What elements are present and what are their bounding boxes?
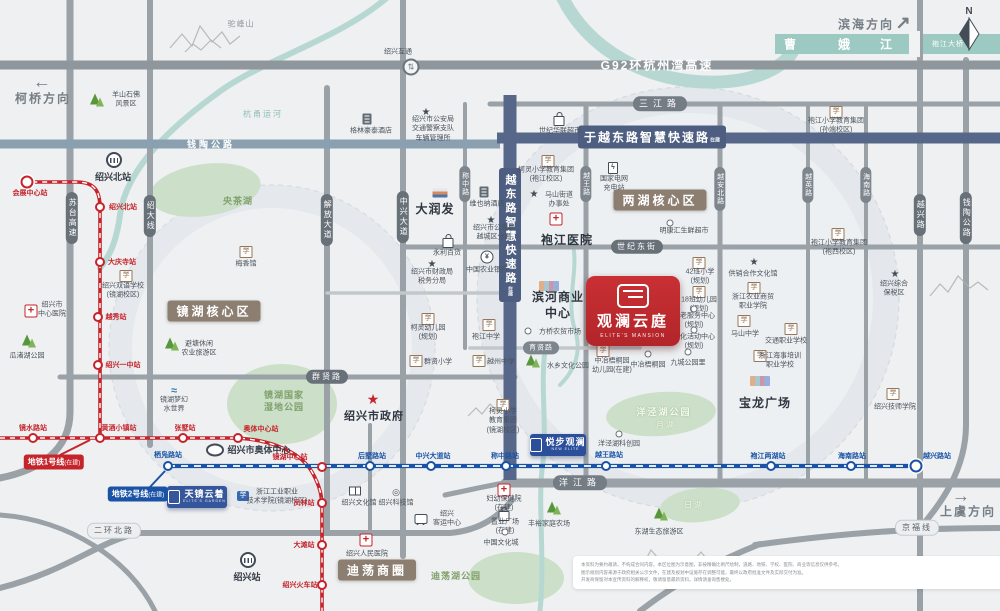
keling-primary-1-label: 柯灵小学教育集团(袍江校区) [518, 166, 574, 185]
shuangyu-school-icon [120, 270, 133, 282]
l2-station-中兴大道站 [426, 461, 436, 471]
nongshang-college-label: 浙江农业商贸职业学院 [732, 293, 774, 312]
l1-station-绍兴火车站 [317, 580, 327, 590]
zone-lianghu: 两湖核心区 [613, 190, 706, 211]
l1-station-label-镜湖中心站: 镜湖中心站 [273, 452, 308, 462]
paojiang-primary-1-label: 袍江小学教育集团(孙端校区) [808, 117, 864, 136]
l1-station-label-奥体中心站: 奥体中心站 [244, 424, 279, 434]
bitang-agritourism-label: 避塘休闲农业旅游区 [182, 340, 217, 359]
paojiang-hospital-label: 袍江医院 [541, 232, 593, 248]
rt-mart-label: 大润发 [415, 201, 454, 217]
disclaimer-box: 本资料为要约邀请，不构成合同内容。本区位图为示意图，非按精确比例尺绘制，道路、地… [573, 556, 1000, 589]
l2-station-越王路站 [601, 461, 611, 471]
project-guanlan-yunting-logo: 观澜云庭 ELITE'S MANSION [586, 276, 680, 346]
caoe-river-char-娥: 娥 [838, 36, 850, 53]
jinghu-wetland-label: 镜湖国家湿地公园 [264, 389, 304, 413]
shiji-hualian-icon [554, 116, 565, 126]
road-label-qiantao-top: 钱陶公路 [187, 138, 235, 151]
smart-road-h-text: 于越东路智慧快速路 [584, 131, 710, 145]
fangqiao-market-label: 方桥农贸市场 [539, 327, 581, 336]
aoti-sports-center-icon [206, 444, 224, 457]
road-pill-越王路: 越王路 [580, 166, 591, 202]
zone-didang: 迪荡商圈 [338, 560, 416, 581]
passenger-center-icon [415, 514, 428, 524]
renmin-hospital-label: 绍兴人民医院 [346, 549, 388, 558]
l2-station-栖凫路站 [163, 461, 173, 471]
l1-station-张墅站 [178, 433, 188, 443]
mashan-middle-icon [738, 315, 751, 327]
l1-station-label-张墅站: 张墅站 [175, 423, 196, 433]
yangshan-scenic-label: 羊山石佛风景区 [112, 91, 140, 110]
road-pill-越兴路: 越兴路 [914, 194, 926, 236]
bar-logo-icon [530, 438, 542, 452]
abc-bank-label: 中国农业银行 [466, 265, 508, 274]
l1-station-镜水路站 [28, 433, 38, 443]
passenger-center-label: 绍兴客运中心 [433, 510, 461, 529]
l2-station-称中路站 [501, 461, 511, 471]
mashan-middle-label: 马山中学 [731, 329, 759, 338]
l2-station-越兴路站 [910, 460, 923, 473]
l1-station-绍兴一中站 [93, 360, 103, 370]
mashan-subdistrict-icon [530, 184, 539, 202]
paojiang-bridge [909, 31, 920, 57]
mingkanghui-label: 明康汇生鲜超市 [660, 226, 709, 235]
zone-jinghu: 镜湖核心区 [167, 301, 260, 322]
china-culture-city-icon [502, 529, 509, 536]
yuezhou-middle-label: 越州中学 [487, 357, 515, 366]
road-pill-越英路: 越英路 [802, 167, 813, 203]
paojiang-primary-2-label: 袍江小学教育集团(袍西校区) [811, 239, 867, 258]
shuixiang-park-icon [526, 355, 536, 366]
location-map: N 于越东路智慧快速路在建 越东路智慧快速路在建 袍江大桥 观澜云庭 ELITE… [0, 0, 1000, 611]
l2-station-海南路站 [846, 461, 856, 471]
road-pill-中兴大道: 中兴大道 [397, 191, 409, 243]
dir-keqiao-arrow-icon: ← [33, 72, 51, 93]
city-government-icon [367, 391, 380, 409]
l1-station-镜湖中心站 [317, 462, 327, 472]
abc-bank-icon [481, 251, 494, 264]
meixiang-hall-label: 梅香馆 [236, 259, 257, 268]
l1-station-label-镜水路站: 镜水路站 [19, 423, 47, 433]
rihu-lake-label: 日湖 [684, 501, 704, 512]
sxbei-railway-icon [106, 152, 122, 168]
road-label-g92: G92环杭州湾高速 [601, 57, 714, 74]
line2-badge-text: 地铁2号线 [112, 490, 148, 499]
keling-primary-2-label: 柯灵小学教育集团(镜湖校区) [487, 407, 520, 435]
vienna-hotel-label: 维也纳酒店 [470, 199, 505, 208]
binhe-business-center-label: 滨河商业中心 [532, 289, 584, 321]
smart-road-h-label: 于越东路智慧快速路在建 [578, 126, 726, 149]
rt-mart-icon [433, 189, 448, 198]
donghu-eco-tourism-icon [654, 508, 664, 519]
center-hospital-icon [25, 305, 38, 318]
paojiang-hospital-icon [550, 213, 563, 226]
culture-hall-label: 绍兴文化馆 [342, 498, 377, 507]
fangqiao-market-icon [525, 328, 532, 335]
gongxiao-culture-label: 供销合作文化馆 [729, 269, 778, 278]
yuehu-lake-label: 月湖 [656, 421, 676, 432]
fengyu-farm-icon [547, 502, 557, 513]
l2-station-label-栖凫路站: 栖凫路站 [154, 450, 182, 460]
l1-station-凤林站 [317, 498, 327, 508]
menghuan-waterworld-label: 镜湖梦幻水世界 [160, 396, 188, 415]
road-pill-海南路: 海南路 [860, 167, 871, 203]
mashan-subdistrict-label: 马山街道办事处 [545, 191, 573, 210]
yangjinghu-park-label: 洋泾湖公园 [636, 406, 691, 418]
l2-station-label-称中路站: 称中路站 [491, 451, 519, 461]
shaoxing-interchange-label: 绍兴互通 [384, 47, 412, 56]
greentree-hotel-icon [363, 114, 372, 125]
jiucheng-park-icon [685, 349, 692, 356]
road-pill-苏台高速: 苏台高速 [66, 192, 78, 244]
shuangyu-school-label: 绍兴双语学校(镜湖校区) [102, 282, 144, 301]
l2-station-label-中兴大道站: 中兴大道站 [416, 451, 451, 461]
yangshan-scenic-icon [90, 94, 100, 105]
l1-station-大滩站 [317, 540, 327, 550]
meixiang-hall-icon [240, 246, 253, 258]
l1-station-黄酒小镇站 [95, 433, 105, 443]
l2-station-label-后墅路站: 后墅路站 [358, 451, 386, 461]
jishi-college-label: 绍兴技师学院 [874, 402, 916, 411]
jiucheng-park-label: 九城公园里 [671, 358, 706, 367]
smart-road-v-status: 在建 [507, 286, 513, 296]
shiji-hualian-label: 世纪华联超市 [539, 126, 581, 135]
baolong-plaza-icon [750, 376, 770, 386]
baolong-plaza-label: 宝龙广场 [739, 395, 791, 411]
l1-station-会展中心站 [21, 176, 34, 189]
zhongye-kindergarten-icon [597, 345, 610, 357]
jiaotong-school-icon [785, 323, 798, 335]
road-pill-京福线: 京福线 [895, 520, 939, 536]
project-name: 观澜云庭 [597, 310, 669, 331]
finance-bureau-label: 绍兴市财政局税务分局 [411, 268, 453, 287]
police-yuecheng-label: 绍兴市公安局越城区分局 [473, 224, 515, 243]
paojiang-middle-label: 袍江中学 [472, 332, 500, 341]
shaoxing-railway-icon [240, 552, 256, 568]
road-pill-解放大道: 解放大道 [321, 194, 333, 246]
road-pill-钱陶公路: 钱陶公路 [960, 192, 972, 244]
hangyong-canal-label: 杭甬运河 [243, 110, 283, 121]
l2-station-label-袍江两湖站: 袍江两湖站 [751, 451, 786, 461]
project-name-en: ELITE'S GARDEN [183, 500, 226, 504]
didang-lake-park-label: 迪荡湖公园 [431, 570, 481, 582]
shuixiang-park-label: 水乡文化公园 [547, 361, 589, 370]
l1-station-label-黄酒小镇站: 黄酒小镇站 [102, 423, 137, 433]
shaoxing-railway-label: 绍兴站 [233, 571, 260, 583]
road-pill-称中路: 称中路 [459, 166, 470, 202]
cloud-logo-icon [617, 284, 649, 308]
l1-station-label-绍兴北站: 绍兴北站 [109, 202, 137, 212]
yongli-store-icon [443, 238, 454, 248]
dir-shangyu-arrow-icon: → [952, 486, 970, 507]
road-pill-育贤路: 育贤路 [523, 341, 559, 354]
tuofeng-mountain-label: 驼峰山 [228, 20, 255, 31]
china-culture-city-label: 中国文化城 [484, 538, 519, 547]
gongxiao-culture-icon [750, 252, 759, 270]
project-name-en: ELITE'S MANSION [600, 333, 665, 339]
caoe-river-char-曹: 曹 [784, 36, 796, 53]
l1-station-label-越秀站: 越秀站 [106, 312, 127, 322]
compass-n-label: N [950, 6, 988, 17]
line2-badge-status: (在建) [148, 493, 164, 499]
keling-kindergarten-label: 柯灵幼儿园(规划) [411, 324, 446, 343]
l1-station-label-大庆寺站: 大庆寺站 [108, 257, 136, 267]
smart-road-h-status: 在建 [710, 138, 720, 144]
disclaimer-line: 开发商保留对本宣传资料的解释权，敬请留意最新资料。详情请垂询售楼处。 [581, 576, 1000, 584]
l1-station-越秀站 [93, 312, 103, 322]
cloud-logo-small-icon [168, 490, 180, 504]
bonded-zone-label: 绍兴综合保税区 [880, 280, 908, 299]
fengyu-farm-label: 丰裕家庭农场 [528, 519, 570, 528]
qunxian-primary-label: 群贤小学 [424, 357, 452, 366]
road-pill-群贤路: 群贤路 [306, 370, 348, 384]
l1-station-label-凤林站: 凤林站 [294, 498, 315, 508]
road-pill-绍大线: 绍大线 [144, 195, 156, 237]
zhongye-kindergarten-label: 中冶梧桐园幼儿园(在建) [592, 357, 632, 376]
zhongye-park-icon [645, 351, 652, 358]
yuezhou-middle-icon [473, 355, 486, 367]
metro-line1-badge: 地铁1号线(在建) [24, 455, 84, 470]
center-hospital-label: 绍兴市中心医院 [38, 301, 66, 320]
road-pill-二环北路: 二环北路 [87, 523, 141, 539]
city-government-label: 绍兴市政府 [344, 410, 404, 425]
traffic-police-label: 绍兴市公安局交通警察支队车辆管理所 [412, 115, 454, 143]
road-pill-世纪东街: 世纪东街 [611, 240, 663, 254]
metro-line2-badge: 地铁2号线(在建) [108, 487, 168, 502]
shaoxing-interchange-icon [403, 59, 420, 76]
l2-station-label-越王路站: 越王路站 [595, 450, 623, 460]
l1-station-label-绍兴一中站: 绍兴一中站 [106, 360, 141, 370]
line2-callout [150, 471, 165, 487]
l1-station-大庆寺站 [95, 257, 105, 267]
jishi-college-icon [887, 388, 900, 400]
guazhuhu-park-icon [22, 335, 32, 346]
l1-station-label-大滩站: 大滩站 [294, 540, 315, 550]
l2-station-label-海南路站: 海南路站 [838, 451, 866, 461]
project-tianjing-yunzhe-logo: 天镜云着 ELITE'S GARDEN [167, 486, 227, 508]
project-name-en: NEW ELITE [552, 448, 580, 452]
yongli-store-label: 永利百货 [433, 248, 461, 257]
line1-badge-text: 地铁1号线 [28, 458, 64, 467]
disclaimer-line: 图示规划内容来源于政府相关公示文件，在建及规划中设施存在调整可能，最终以政府批准… [581, 569, 1000, 577]
l2-station-后墅路站 [365, 461, 375, 471]
l1-station-label-绍兴火车站: 绍兴火车站 [283, 580, 318, 590]
science-hall-label: 绍兴科技馆 [379, 498, 414, 507]
qunxian-primary-icon [410, 355, 423, 367]
greentree-hotel-label: 格林豪泰酒店 [350, 126, 392, 135]
sxbei-railway-label: 绍兴北站 [95, 171, 131, 183]
l1-station-绍兴北站 [95, 202, 105, 212]
disclaimer-line: 本资料为要约邀请，不构成合同内容。本区位图为示意图，非按精确比例尺绘制，道路、地… [581, 561, 1000, 569]
renmin-hospital-icon [360, 534, 373, 547]
yangcha-lake-label: 央茶湖 [223, 195, 253, 207]
culture-hall-icon [349, 487, 361, 496]
yangjing-tech-park-icon [616, 431, 623, 438]
school-42class-label: 42班小学(规划) [686, 268, 715, 287]
donghu-eco-tourism-label: 东湖生态旅游区 [635, 527, 684, 536]
jiaotong-school-label: 交通职业学校 [765, 336, 807, 345]
road-pill-三江路: 三江路 [633, 96, 687, 111]
zhongye-park-label: 中冶梧桐园 [631, 360, 666, 369]
dir-binhai-arrow-icon: ↗ [895, 13, 910, 34]
bitang-agritourism-icon [165, 338, 175, 349]
paojiang-middle-icon [483, 319, 496, 331]
haishi-school-label: 浙江海事培训职业学校 [759, 352, 801, 371]
compass-needle-icon [956, 17, 982, 51]
caoe-river-char-江: 江 [880, 36, 892, 53]
guazhuhu-park-label: 瓜渚湖公园 [10, 351, 45, 360]
l2-station-label-越兴路站: 越兴路站 [923, 451, 951, 461]
road-pill-洋江路: 洋江路 [553, 475, 607, 490]
ev-charging-icon [608, 162, 618, 174]
dir-binhai-label: 滨海方向 [838, 16, 894, 33]
l1-station-奥体中心站 [233, 433, 243, 443]
yangjing-tech-park-label: 洋泾湖科创园 [598, 439, 640, 448]
road-pill-越安北路: 越安北路 [714, 167, 725, 211]
l2-station-袍江两湖站 [766, 461, 776, 471]
l1-station-label-会展中心站: 会展中心站 [13, 188, 48, 198]
compass: N [950, 6, 988, 54]
project-yuebu-guanlan-logo: 悦步观澜 NEW ELITE [530, 434, 586, 456]
vienna-hotel-icon [480, 187, 489, 198]
line1-badge-status: (在建) [64, 461, 80, 467]
